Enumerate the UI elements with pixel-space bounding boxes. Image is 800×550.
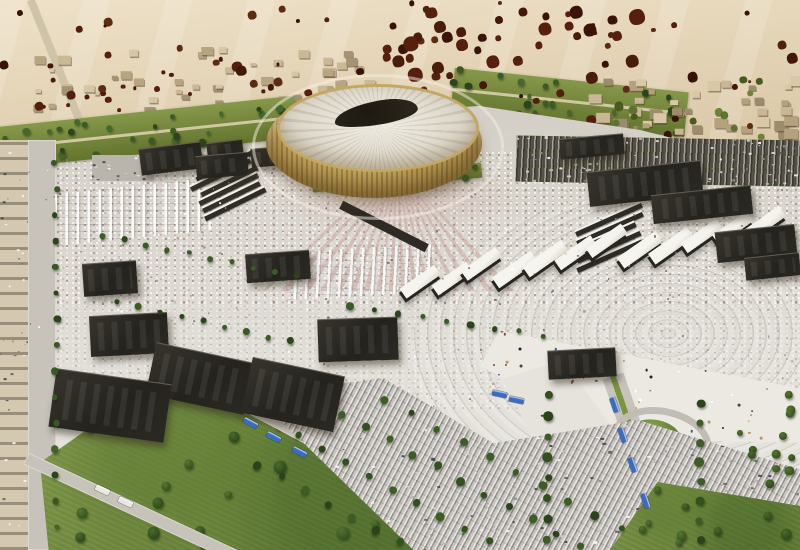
parked-car [437, 486, 441, 488]
parked-car [527, 138, 529, 139]
person-dot [633, 214, 635, 216]
person-dot [584, 179, 586, 181]
desert-shrub [520, 94, 524, 98]
parked-car [359, 438, 362, 440]
person-dot [245, 317, 247, 319]
palm-tree [543, 411, 553, 421]
parked-car [590, 477, 593, 479]
palm-tree [485, 451, 495, 461]
desert-shrub [426, 7, 437, 18]
lawn-tree [638, 525, 647, 534]
person-dot [654, 331, 655, 332]
parked-car [747, 140, 750, 142]
desert-shrub [533, 98, 539, 104]
palm-tree [54, 315, 61, 322]
person-dot [282, 196, 283, 197]
palm-tree [512, 468, 520, 476]
parked-car [572, 449, 574, 450]
person-dot [506, 361, 509, 364]
person-dot [414, 356, 416, 358]
parked-car [516, 138, 518, 139]
person-dot [782, 378, 783, 379]
desert-shrub [623, 86, 629, 92]
person-dot [675, 252, 677, 254]
palm-tree [341, 457, 351, 467]
belt-tree [153, 124, 158, 129]
person-dot [768, 335, 770, 337]
person-dot [439, 297, 441, 299]
parked-car [598, 480, 601, 482]
desert-shrub [732, 84, 738, 90]
person-dot [661, 331, 662, 332]
parked-car [544, 136, 548, 138]
person-dot [583, 310, 585, 312]
desert-shrub [629, 9, 645, 25]
person-dot [665, 270, 667, 272]
street-tree [114, 299, 119, 304]
person-dot [265, 296, 266, 297]
stadium-roof [277, 84, 479, 172]
person-dot [519, 347, 522, 350]
desert-shrub [456, 27, 466, 37]
parked-car [467, 430, 469, 431]
person-dot [306, 308, 308, 310]
person-dot [184, 213, 186, 215]
desert-shrub [672, 116, 678, 122]
palm-tree [52, 212, 58, 218]
person-dot [209, 292, 210, 293]
parked-car [558, 459, 561, 461]
tree [785, 391, 794, 400]
palm-tree [54, 186, 60, 192]
person-dot [745, 168, 747, 170]
parked-car [733, 144, 735, 145]
palm-tree [542, 452, 552, 462]
parked-car [716, 451, 719, 453]
person-dot [506, 229, 507, 230]
lawn-tree [162, 482, 171, 491]
lawn-tree [645, 520, 652, 527]
belt-tree [73, 118, 80, 125]
tree [772, 450, 781, 459]
person-dot [117, 189, 119, 191]
belt-tree [47, 129, 52, 134]
desert-shrub [565, 22, 574, 31]
palm-tree [51, 445, 59, 453]
person-dot [793, 338, 794, 339]
belt-tree [170, 114, 175, 119]
street-tree [222, 324, 228, 330]
person-dot [203, 246, 205, 248]
person-dot [576, 255, 578, 257]
person-dot [711, 310, 712, 311]
person-dot [144, 267, 146, 269]
person-dot [571, 381, 573, 383]
person-dot [781, 189, 783, 191]
person-dot [517, 224, 518, 225]
street-tree [293, 273, 300, 280]
belt-tree [56, 126, 62, 132]
person-dot [792, 361, 793, 362]
lawn-tree [75, 532, 84, 541]
person-dot [576, 288, 578, 290]
parked-car [537, 437, 539, 438]
street-tree [164, 247, 170, 253]
person-dot [709, 266, 710, 267]
parked-car [593, 541, 597, 543]
person-dot [7, 198, 9, 200]
rightedge-trees [735, 385, 800, 485]
person-dot [117, 309, 119, 311]
palm-tree [460, 524, 469, 533]
person-dot [741, 300, 743, 302]
person-dot [650, 390, 652, 392]
person-dot [12, 340, 14, 342]
desert-shrub [250, 79, 258, 87]
belt-tree [173, 133, 180, 140]
belt-tree [130, 137, 135, 142]
street-tree [466, 321, 474, 329]
person-dot [458, 350, 459, 351]
parked-car [12, 442, 15, 444]
desert-shrub [98, 85, 106, 93]
person-dot [68, 200, 69, 201]
person-dot [173, 240, 174, 241]
person-dot [431, 398, 433, 400]
parked-car [538, 463, 541, 465]
palm-tree [361, 421, 372, 432]
palm-tree [576, 542, 585, 550]
person-dot [47, 170, 49, 172]
belt-tree [22, 127, 31, 136]
desert-shrub [573, 33, 581, 41]
street-tree [271, 269, 278, 276]
person-dot [171, 320, 172, 321]
tree [788, 454, 796, 462]
desert-shrub [583, 23, 596, 36]
desert-shrub [747, 123, 753, 129]
person-dot [282, 287, 283, 288]
person-dot [436, 305, 438, 307]
street-tree [516, 328, 522, 334]
person-dot [670, 237, 671, 238]
person-dot [121, 310, 123, 312]
person-dot [712, 295, 713, 296]
palm-tree [544, 515, 553, 524]
street-tree [186, 250, 191, 255]
person-dot [507, 258, 509, 260]
parked-car [342, 449, 345, 451]
person-dot [750, 186, 751, 187]
person-dot [213, 188, 215, 190]
person-dot [680, 262, 682, 264]
person-dot [634, 271, 636, 273]
desert-shrub [76, 26, 82, 32]
parked-car [450, 461, 452, 462]
person-dot [653, 227, 655, 229]
person-dot [190, 295, 192, 297]
person-dot [22, 195, 24, 197]
person-dot [635, 390, 638, 393]
lawn-tree [714, 527, 722, 535]
person-dot [511, 268, 513, 270]
lawn-tree [763, 511, 772, 520]
palm-tree [696, 420, 703, 427]
belt-tree [219, 111, 224, 116]
person-dot [480, 349, 482, 351]
desert-shrub [748, 80, 752, 84]
palm-tree [412, 498, 422, 508]
person-dot [654, 235, 656, 237]
desert-shrub [404, 36, 419, 51]
person-dot [711, 401, 713, 403]
palm-tree [395, 536, 406, 547]
parked-car [597, 493, 600, 495]
person-dot [600, 326, 602, 328]
lawn-tree [337, 527, 350, 540]
tree [772, 465, 780, 473]
person-dot [63, 242, 64, 243]
person-dot [86, 306, 87, 307]
person-dot [474, 251, 476, 253]
palm-tree [54, 342, 60, 348]
person-dot [569, 226, 570, 227]
parked-car [758, 145, 760, 146]
lawn-tree [184, 460, 193, 469]
desert-shrub [393, 56, 404, 67]
palm-tree [317, 444, 326, 453]
person-dot [98, 160, 99, 161]
parked-car [471, 516, 474, 518]
lawn-tree [228, 431, 239, 442]
dark-building [195, 152, 249, 179]
person-dot [338, 250, 340, 252]
parked-car [656, 140, 659, 142]
parked-car [596, 437, 599, 439]
person-dot [636, 262, 637, 263]
parked-car [628, 455, 630, 456]
parked-car [758, 142, 761, 144]
person-dot [203, 232, 205, 234]
palm-tree [545, 433, 552, 440]
person-dot [225, 207, 227, 209]
palm-tree [696, 497, 705, 506]
person-dot [30, 323, 32, 325]
palmrow-roadC [50, 150, 62, 540]
lawn-tree [147, 527, 160, 540]
person-dot [534, 273, 535, 274]
person-dot [505, 364, 507, 366]
person-dot [788, 156, 790, 158]
person-dot [407, 248, 408, 249]
belt-tree [67, 128, 75, 136]
person-dot [579, 250, 580, 251]
person-dot [357, 221, 359, 223]
person-dot [387, 261, 389, 263]
desert-shrub [432, 62, 444, 74]
lawn-tree [654, 486, 662, 494]
desert-shrub [133, 87, 136, 90]
person-dot [601, 219, 603, 221]
street-tree [134, 302, 143, 311]
person-dot [560, 224, 562, 226]
person-dot [707, 349, 709, 351]
palm-tree [696, 439, 704, 447]
palm-tree [543, 494, 551, 502]
parked-car [625, 425, 628, 427]
person-dot [628, 265, 630, 267]
person-dot [584, 189, 586, 191]
person-dot [158, 234, 160, 236]
street-tree [142, 242, 149, 249]
shrub-cluster [383, 10, 645, 78]
palm-tree [485, 536, 494, 545]
stadium-aerial-render [0, 0, 800, 550]
person-dot [595, 380, 597, 382]
person-dot [19, 179, 20, 180]
person-dot [621, 204, 623, 206]
tree [748, 450, 756, 458]
person-dot [468, 283, 470, 285]
belt-tree [81, 122, 88, 129]
palm-tree [618, 524, 626, 532]
person-dot [481, 245, 483, 247]
parked-car [409, 538, 412, 540]
lawn-tree [153, 498, 164, 509]
person-dot [171, 300, 173, 302]
palm-tree [54, 291, 59, 296]
parked-car [639, 138, 642, 140]
person-dot [391, 256, 393, 258]
parked-car [665, 450, 667, 451]
parked-car [518, 145, 520, 147]
palmrow-v1 [542, 385, 554, 550]
desert-shrub [324, 17, 329, 22]
person-dot [539, 255, 541, 257]
person-dot [46, 199, 48, 201]
parked-car [565, 477, 568, 479]
palm-tree [51, 160, 57, 166]
person-dot [21, 263, 23, 265]
parked-car [443, 543, 447, 545]
person-dot [175, 231, 176, 232]
parked-car [433, 528, 437, 530]
person-dot [638, 399, 641, 402]
parked-car [506, 530, 509, 532]
person-dot [708, 420, 711, 423]
desert-shrub [608, 15, 617, 24]
person-dot [639, 322, 641, 324]
person-dot [784, 354, 786, 356]
parked-car [371, 466, 375, 468]
person-dot [126, 363, 128, 365]
palm-tree [53, 420, 60, 427]
person-dot [468, 267, 470, 269]
street-tree [265, 335, 271, 341]
parked-car [3, 498, 6, 500]
street-tree [371, 307, 377, 313]
desert-shrub [612, 31, 622, 41]
desert-shrub [651, 28, 655, 32]
palm-tree [278, 471, 287, 480]
parked-car [407, 486, 409, 487]
desert-shrub [248, 11, 257, 20]
person-dot [719, 221, 721, 223]
parked-car [652, 433, 655, 435]
person-dot [28, 172, 29, 173]
person-dot [597, 163, 598, 164]
person-dot [242, 251, 244, 253]
person-dot [80, 251, 82, 253]
person-dot [731, 394, 733, 396]
desert-shrub [405, 54, 413, 62]
street-tree [250, 266, 256, 272]
parked-car [425, 523, 428, 525]
person-dot [442, 278, 444, 280]
street-tree [420, 314, 426, 320]
palm-tree [459, 436, 470, 447]
person-dot [661, 241, 663, 243]
desert-shrub [67, 91, 76, 100]
parked-car [595, 474, 598, 476]
person-dot [722, 427, 724, 429]
parked-car [671, 446, 674, 448]
person-dot [288, 351, 290, 353]
parked-car [602, 443, 606, 445]
person-dot [236, 307, 238, 309]
person-dot [386, 284, 387, 285]
person-dot [63, 177, 65, 179]
palm-tree [505, 501, 515, 511]
person-dot [517, 183, 519, 185]
person-dot [493, 364, 495, 366]
palm-tree [294, 430, 303, 439]
desert-shrub [479, 81, 487, 89]
parked-car [725, 490, 728, 492]
person-dot [248, 314, 250, 316]
street-tree [286, 336, 295, 345]
person-dot [408, 369, 409, 370]
parked-car [561, 451, 563, 452]
parked-car [653, 461, 656, 463]
parked-car [513, 497, 517, 499]
lawn-tree [675, 539, 682, 546]
street-tree [395, 310, 402, 317]
desert-shrub [787, 53, 797, 63]
person-dot [494, 299, 496, 301]
street-tree [243, 328, 251, 336]
person-dot [153, 232, 155, 234]
palm-tree [694, 457, 704, 467]
person-dot [356, 269, 358, 271]
desert-shrub [188, 92, 192, 96]
person-dot [453, 210, 455, 212]
parked-car [533, 507, 535, 508]
person-dot [499, 303, 501, 305]
person-dot [155, 281, 157, 283]
palm-tree [365, 472, 373, 480]
desert-shrub [434, 21, 446, 33]
person-dot [641, 294, 642, 295]
person-dot [719, 361, 721, 363]
parked-car [751, 488, 753, 489]
desert-shrub [213, 59, 220, 66]
person-dot [140, 357, 141, 358]
person-dot [469, 398, 471, 400]
person-dot [748, 356, 750, 358]
parked-car [500, 492, 502, 493]
parked-car [608, 451, 612, 453]
